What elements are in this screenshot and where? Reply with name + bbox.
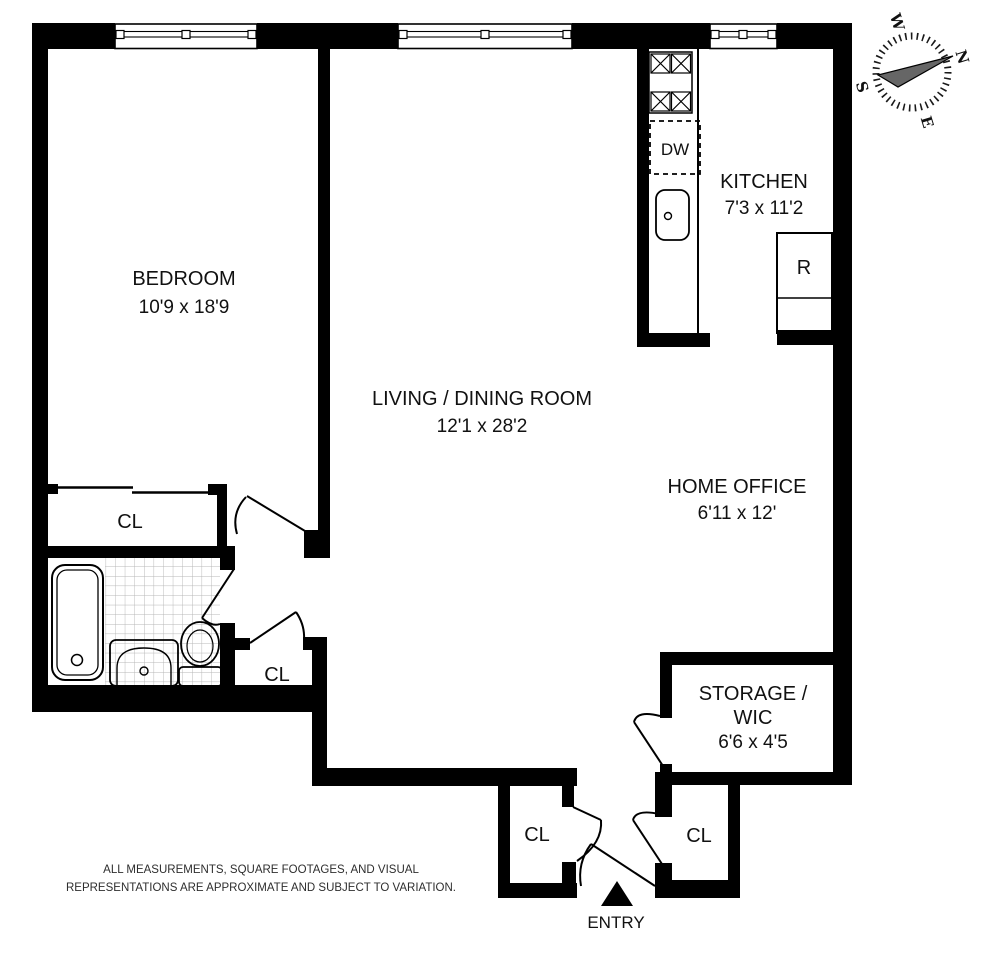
storage-label-line1: STORAGE / [699, 683, 808, 705]
storage-door [634, 714, 663, 766]
bathtub-icon [52, 565, 103, 680]
floorplan-page: DW R [0, 0, 1000, 954]
storage-label-line2: WIC [734, 707, 773, 729]
compass-s: S [852, 79, 872, 95]
kitchen-window [710, 24, 777, 49]
hall-closet-label: CL [264, 664, 290, 686]
foyer-closet-left-door [573, 807, 601, 861]
kitchen-label: KITCHEN [720, 171, 808, 193]
bedroom-dims: 10'9 x 18'9 [139, 297, 230, 318]
kitchen-dims: 7'3 x 11'2 [725, 198, 804, 219]
foyer-closet-right-door [633, 812, 662, 864]
living-dining-label: LIVING / DINING ROOM [372, 388, 592, 410]
bedroom-door [235, 496, 305, 534]
home-office-dims: 6'11 x 12' [698, 503, 777, 524]
foyer-closet-left-label: CL [524, 824, 550, 846]
disclaimer: ALL MEASUREMENTS, SQUARE FOOTAGES, AND V… [66, 864, 456, 894]
kitchen-sink-icon [656, 190, 689, 240]
dishwasher-icon: DW [650, 121, 700, 174]
stove-icon [649, 52, 692, 113]
walls [32, 23, 852, 898]
compass-w: W [886, 10, 909, 33]
compass-needle [878, 56, 953, 87]
compass-n: N [951, 48, 972, 67]
refrigerator-label: R [797, 257, 811, 279]
entry-marker: ENTRY [587, 881, 644, 932]
entry-door [580, 844, 655, 886]
entry-arrow-icon [601, 881, 633, 906]
bathroom [52, 558, 222, 686]
disclaimer-line1: ALL MEASUREMENTS, SQUARE FOOTAGES, AND V… [103, 864, 419, 876]
living-room-window [398, 24, 572, 49]
bedroom-window [115, 24, 257, 49]
refrigerator-icon: R [777, 233, 832, 333]
entry-label: ENTRY [587, 913, 644, 932]
floorplan-svg: DW R [0, 0, 1000, 954]
disclaimer-line2: REPRESENTATIONS ARE APPROXIMATE AND SUBJ… [66, 882, 456, 894]
compass-rose-icon: N E S W [852, 10, 973, 130]
bedroom-label: BEDROOM [132, 268, 235, 290]
dishwasher-label: DW [661, 140, 689, 159]
home-office-label: HOME OFFICE [668, 476, 807, 498]
compass-e: E [917, 114, 938, 130]
bedroom-closet-sliding-door [58, 488, 208, 493]
living-dining-dims: 12'1 x 28'2 [437, 416, 528, 437]
foyer-closet-right-label: CL [686, 825, 712, 847]
bedroom-closet-label: CL [117, 511, 143, 533]
storage-dims: 6'6 x 4'5 [718, 732, 788, 753]
hall-closet-door [250, 612, 304, 643]
